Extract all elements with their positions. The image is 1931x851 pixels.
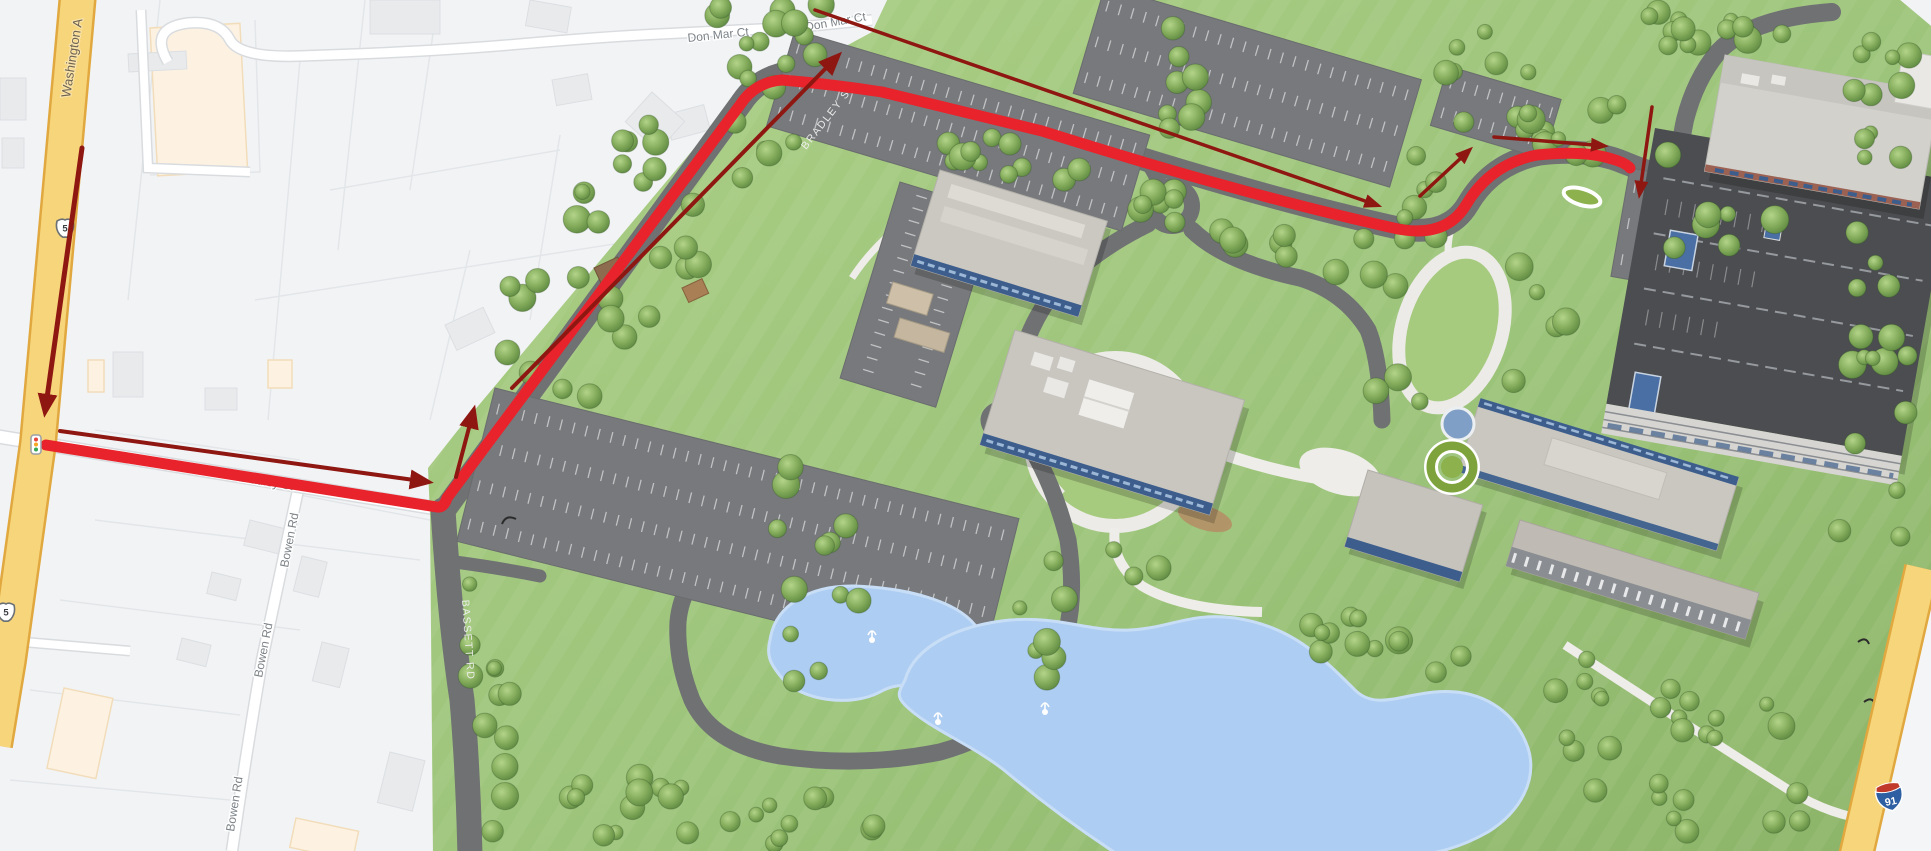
tree-icon xyxy=(1855,129,1875,149)
tree-icon xyxy=(1898,346,1917,365)
tree-icon xyxy=(587,211,610,234)
tree-icon xyxy=(1273,224,1295,246)
tree-icon xyxy=(1787,783,1808,804)
tree-icon xyxy=(815,536,835,556)
tree-icon xyxy=(1888,72,1914,98)
tree-icon xyxy=(1178,104,1205,131)
tree-icon xyxy=(1865,351,1880,366)
tree-icon xyxy=(739,36,754,51)
tree-icon xyxy=(783,670,805,692)
tree-icon xyxy=(1708,710,1724,726)
tree-icon xyxy=(1763,811,1786,834)
tree-icon xyxy=(1389,631,1409,651)
tree-icon xyxy=(1000,166,1018,184)
tree-icon xyxy=(1360,261,1387,288)
tree-icon xyxy=(1659,36,1678,55)
traffic-light-icon xyxy=(31,435,41,454)
tree-icon xyxy=(1868,255,1883,270)
tree-icon xyxy=(1125,567,1143,585)
tree-icon xyxy=(482,820,504,842)
tree-icon xyxy=(626,779,653,806)
tree-icon xyxy=(1661,679,1680,698)
tree-icon xyxy=(1649,774,1668,793)
tree-icon xyxy=(1849,324,1873,348)
tree-icon xyxy=(1889,146,1911,168)
tree-icon xyxy=(1673,790,1694,811)
tree-icon xyxy=(1862,32,1881,51)
tree-icon xyxy=(1761,206,1789,234)
tree-icon xyxy=(1878,275,1900,297)
tree-icon xyxy=(643,157,666,180)
tree-icon xyxy=(1033,628,1060,655)
tree-icon xyxy=(1434,60,1459,85)
green-o-building xyxy=(1426,441,1479,494)
campus-route-map: Washington A Don Mar Ct Don Mar Ct Bradl… xyxy=(0,0,1931,851)
tree-icon xyxy=(1760,697,1774,711)
tree-icon xyxy=(778,455,803,480)
tree-icon xyxy=(1695,202,1721,228)
tree-icon xyxy=(1773,25,1791,43)
tree-icon xyxy=(567,267,589,289)
tree-icon xyxy=(473,713,498,738)
tree-icon xyxy=(1894,401,1917,424)
tree-icon xyxy=(1363,378,1389,404)
tree-icon xyxy=(1345,631,1370,656)
tree-icon xyxy=(1544,679,1568,703)
tree-icon xyxy=(1519,105,1536,122)
tree-icon xyxy=(1451,646,1471,666)
tree-icon xyxy=(575,184,590,199)
tree-icon xyxy=(593,825,615,847)
tree-icon xyxy=(1650,698,1670,718)
tree-icon xyxy=(1013,601,1027,615)
tree-icon xyxy=(674,236,697,259)
tree-icon xyxy=(1857,150,1872,165)
tree-icon xyxy=(783,626,799,642)
tree-icon xyxy=(1407,147,1426,166)
tree-icon xyxy=(846,588,871,613)
tree-icon xyxy=(1671,719,1694,742)
tree-icon xyxy=(500,276,520,296)
tree-icon xyxy=(804,787,827,810)
tree-icon xyxy=(1733,16,1754,37)
tree-icon xyxy=(1161,17,1184,40)
tree-icon xyxy=(1598,736,1622,760)
tree-icon xyxy=(492,754,518,780)
tree-icon xyxy=(768,520,786,538)
tree-icon xyxy=(762,798,777,813)
tree-icon xyxy=(649,246,671,268)
tree-icon xyxy=(1789,811,1810,832)
tree-icon xyxy=(1314,625,1330,641)
tree-icon xyxy=(1521,65,1536,80)
tree-icon xyxy=(1896,43,1921,68)
tree-icon xyxy=(999,133,1021,155)
tree-icon xyxy=(786,134,802,150)
tree-icon xyxy=(781,10,808,37)
tree-icon xyxy=(1878,324,1905,351)
tree-icon xyxy=(577,384,602,409)
tree-icon xyxy=(613,155,631,173)
tree-icon xyxy=(834,514,858,538)
tree-icon xyxy=(961,142,981,162)
tree-icon xyxy=(1885,50,1900,65)
tree-icon xyxy=(1411,393,1428,410)
tree-icon xyxy=(1891,527,1910,546)
tree-icon xyxy=(1134,195,1152,213)
tree-icon xyxy=(487,661,501,675)
map-canvas[interactable]: Washington A Don Mar Ct Don Mar Ct Bradl… xyxy=(0,0,1931,851)
tree-icon xyxy=(1275,245,1297,267)
campus-layer: BRADLEY ST BASSETT RD xyxy=(428,0,1931,851)
tree-icon xyxy=(1505,253,1533,281)
glass-rotunda xyxy=(1442,408,1474,440)
tree-icon xyxy=(1666,811,1681,826)
tree-icon xyxy=(771,830,788,847)
tree-icon xyxy=(1845,433,1866,454)
tree-icon xyxy=(1641,8,1658,25)
tree-icon xyxy=(1146,556,1171,581)
tree-icon xyxy=(756,140,782,166)
tree-icon xyxy=(1477,24,1492,39)
tree-icon xyxy=(658,784,683,809)
tree-icon xyxy=(749,807,764,822)
svg-text:5: 5 xyxy=(3,608,9,619)
tree-icon xyxy=(1426,662,1447,683)
tree-icon xyxy=(1707,730,1723,746)
tree-icon xyxy=(1182,64,1208,90)
tree-icon xyxy=(1594,691,1609,706)
tree-icon xyxy=(1655,142,1681,168)
tree-icon xyxy=(526,269,550,293)
svg-text:5: 5 xyxy=(62,224,68,235)
tree-icon xyxy=(781,576,807,602)
tree-icon xyxy=(863,815,885,837)
tree-icon xyxy=(1680,691,1700,711)
tree-icon xyxy=(1720,206,1736,222)
tree-icon xyxy=(810,662,828,680)
tree-icon xyxy=(638,306,660,328)
tree-icon xyxy=(1559,730,1575,746)
tree-icon xyxy=(1671,17,1695,41)
tree-icon xyxy=(1485,52,1508,75)
tree-icon xyxy=(677,822,699,844)
tree-icon xyxy=(1454,112,1474,132)
tree-icon xyxy=(1529,285,1544,300)
tree-icon xyxy=(720,812,740,832)
tree-icon xyxy=(1165,212,1185,232)
tree-icon xyxy=(463,577,477,591)
tree-icon xyxy=(1052,586,1078,612)
tree-icon xyxy=(983,129,1001,147)
tree-icon xyxy=(612,130,634,152)
tree-icon xyxy=(491,783,518,810)
tree-icon xyxy=(1718,234,1740,256)
tree-icon xyxy=(1552,308,1579,335)
tree-icon xyxy=(1846,221,1868,243)
tree-icon xyxy=(1579,651,1595,667)
tree-icon xyxy=(781,815,798,832)
tree-icon xyxy=(1607,96,1626,115)
tree-icon xyxy=(1768,713,1795,740)
tree-icon xyxy=(1577,673,1593,689)
tree-icon xyxy=(494,726,518,750)
tree-icon xyxy=(1169,47,1189,67)
tree-icon xyxy=(1828,519,1851,542)
tree-icon xyxy=(1044,551,1063,570)
tree-icon xyxy=(1848,279,1866,297)
tree-icon xyxy=(1323,259,1349,285)
tree-icon xyxy=(732,168,753,189)
tree-icon xyxy=(1889,482,1905,498)
tree-icon xyxy=(1663,237,1685,259)
tree-icon xyxy=(498,682,521,705)
tree-icon xyxy=(1397,210,1413,226)
tree-icon xyxy=(553,379,573,399)
tree-icon xyxy=(597,305,624,332)
tree-icon xyxy=(778,55,795,72)
tree-icon xyxy=(563,206,591,234)
tree-icon xyxy=(1354,229,1374,249)
tree-icon xyxy=(639,115,658,134)
tree-icon xyxy=(495,340,520,365)
tree-icon xyxy=(1165,190,1184,209)
tree-icon xyxy=(1449,40,1465,56)
tree-icon xyxy=(1843,79,1865,101)
tree-icon xyxy=(1350,610,1367,627)
tree-icon xyxy=(1068,158,1091,181)
tree-icon xyxy=(567,789,584,806)
tree-icon xyxy=(1106,542,1122,558)
tree-icon xyxy=(803,43,827,67)
tree-icon xyxy=(1220,227,1246,253)
tree-icon xyxy=(1584,779,1607,802)
tree-icon xyxy=(710,0,732,18)
tree-icon xyxy=(1502,369,1525,392)
